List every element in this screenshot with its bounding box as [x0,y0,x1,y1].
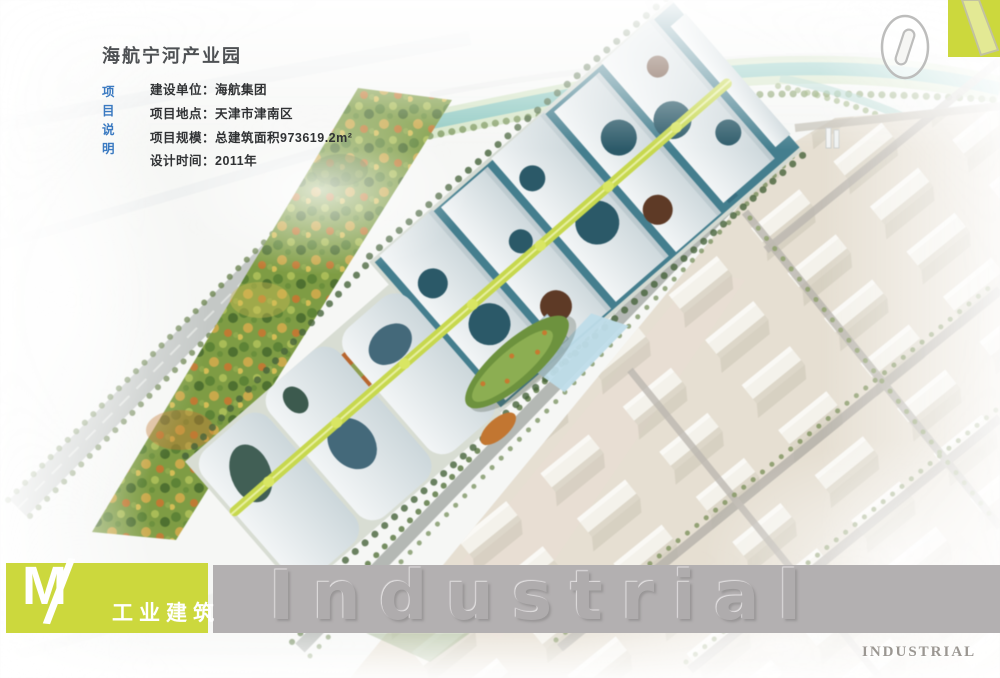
page-title: 海航宁河产业园 [102,42,242,68]
watermark-text: Industrial [269,565,819,633]
watermark-banner: Industrial [213,565,1000,633]
info-line-location: 项目地点：天津市津南区 [150,103,352,127]
section-label: 项目说明 [102,81,116,157]
category-block: M / 工业建筑 [6,563,208,633]
info-line-year: 设计时间：2011年 [150,150,352,174]
corner-watermark: INDUSTRIAL [862,644,976,661]
presentation-board: 海航宁河产业园 项目说明 建设单位：海航集团 项目地点：天津市津南区 项目规模：… [0,0,1000,678]
project-info-lines: 建设单位：海航集团 项目地点：天津市津南区 项目规模：总建筑面积973619.2… [150,79,352,174]
category-label: 工业建筑 [112,597,220,627]
page-number-badge [858,0,1000,100]
info-line-scale: 项目规模：总建筑面积973619.2m² [150,127,352,151]
info-line-client: 建设单位：海航集团 [150,79,352,103]
